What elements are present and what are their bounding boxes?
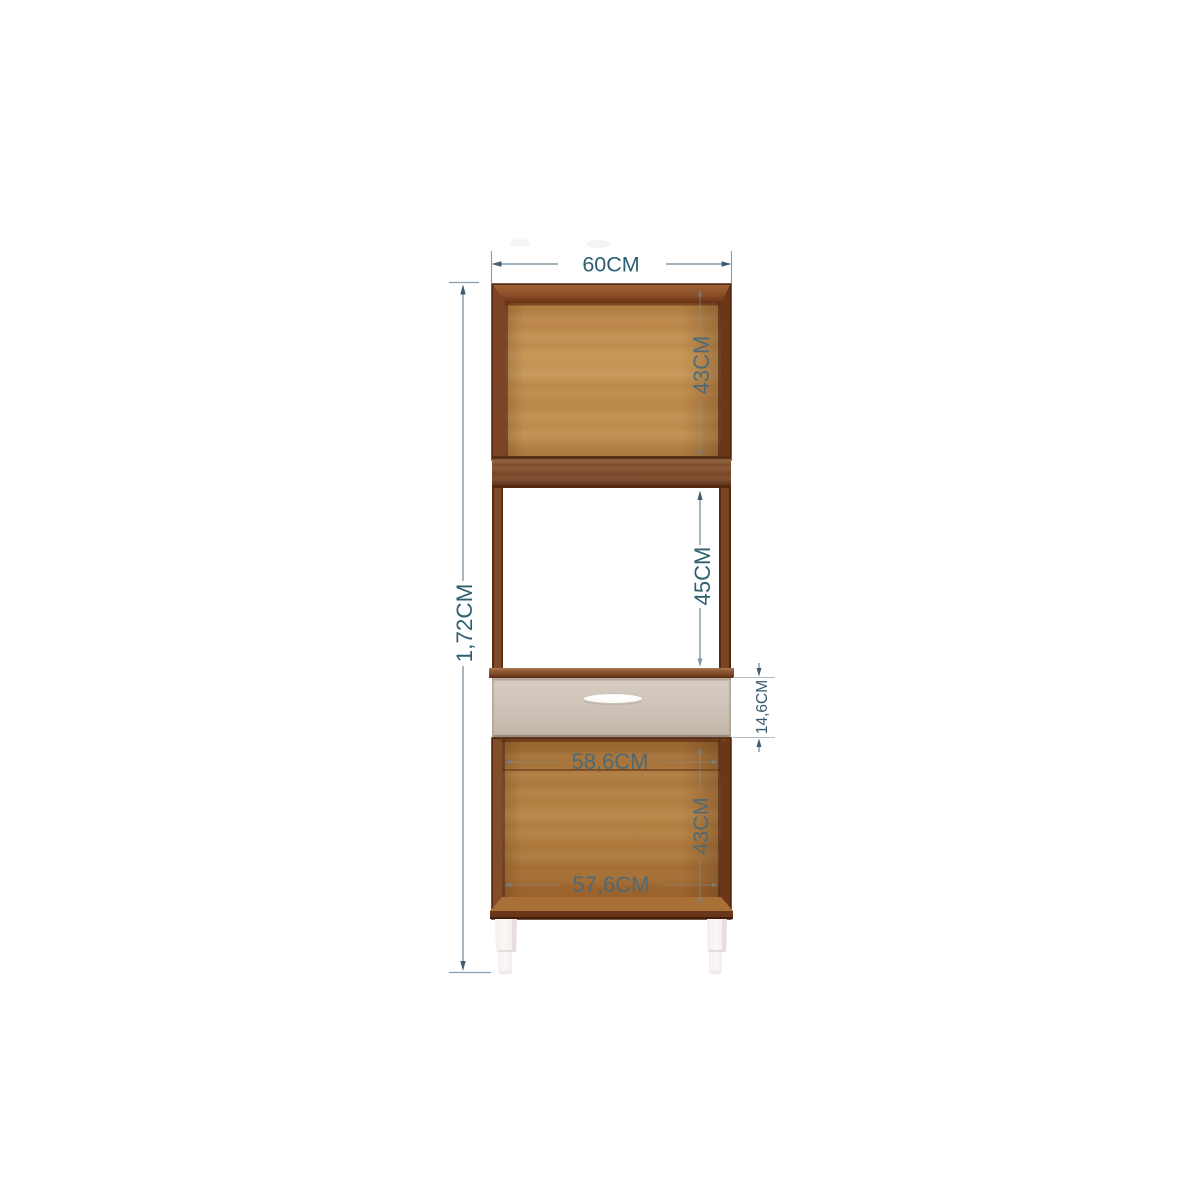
svg-text:58,6CM: 58,6CM bbox=[571, 749, 648, 774]
svg-text:45CM: 45CM bbox=[690, 547, 715, 606]
svg-text:1,72CM: 1,72CM bbox=[452, 584, 477, 663]
svg-text:43CM: 43CM bbox=[689, 336, 714, 395]
svg-text:14,6CM: 14,6CM bbox=[754, 680, 771, 734]
svg-text:43CM: 43CM bbox=[689, 797, 713, 854]
svg-text:57,6CM: 57,6CM bbox=[572, 872, 649, 897]
svg-text:60CM: 60CM bbox=[582, 253, 639, 277]
